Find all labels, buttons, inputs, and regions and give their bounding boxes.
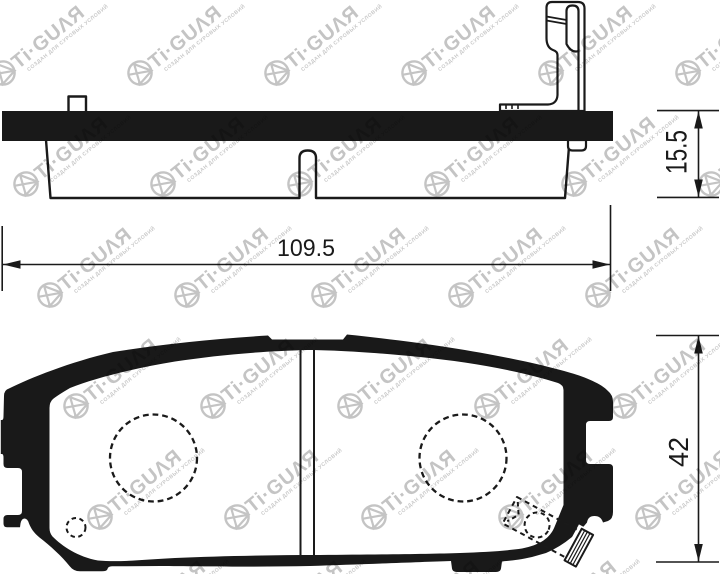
svg-text:15.5: 15.5: [661, 130, 694, 174]
svg-text:42: 42: [663, 437, 694, 467]
svg-text:109.5: 109.5: [277, 235, 335, 262]
